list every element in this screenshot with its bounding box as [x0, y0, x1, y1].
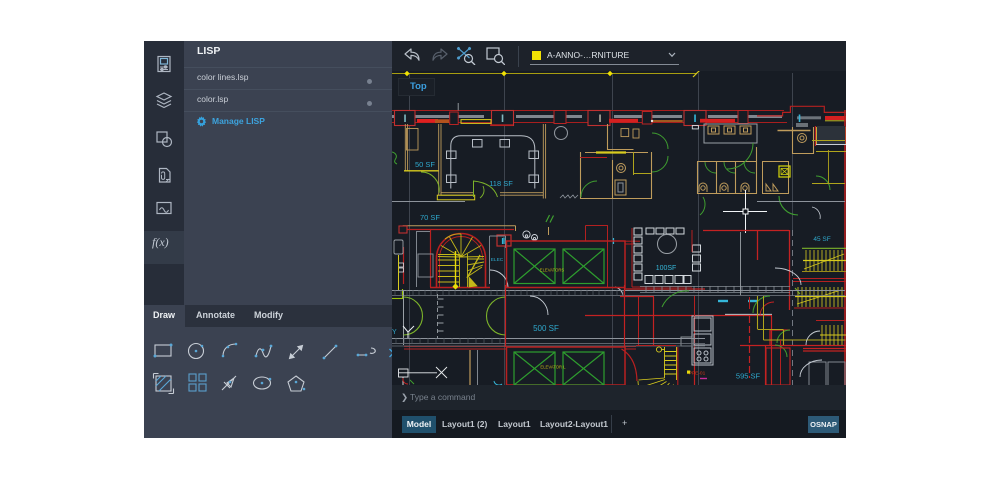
- svg-text:I: I: [501, 113, 504, 125]
- svg-text:Y: Y: [392, 329, 397, 336]
- svg-text:ELEVATORS: ELEVATORS: [540, 268, 565, 273]
- svg-text:PPE-01: PPE-01: [689, 371, 706, 377]
- svg-text:45 SF: 45 SF: [813, 236, 830, 243]
- svg-text:I: I: [503, 236, 506, 246]
- svg-text:I: I: [598, 113, 601, 125]
- svg-text:I: I: [403, 113, 406, 125]
- svg-text:50 SF: 50 SF: [415, 160, 435, 169]
- svg-text:ELEC: ELEC: [491, 257, 504, 263]
- svg-text:100SF: 100SF: [656, 265, 677, 272]
- svg-text:500 SF: 500 SF: [533, 324, 559, 333]
- svg-text:70 SF: 70 SF: [420, 213, 440, 222]
- svg-text:118 SF: 118 SF: [489, 179, 513, 188]
- svg-text:ELEVATOR L: ELEVATOR L: [540, 365, 566, 370]
- svg-text:595 SF: 595 SF: [736, 372, 761, 381]
- svg-text:I: I: [693, 113, 696, 125]
